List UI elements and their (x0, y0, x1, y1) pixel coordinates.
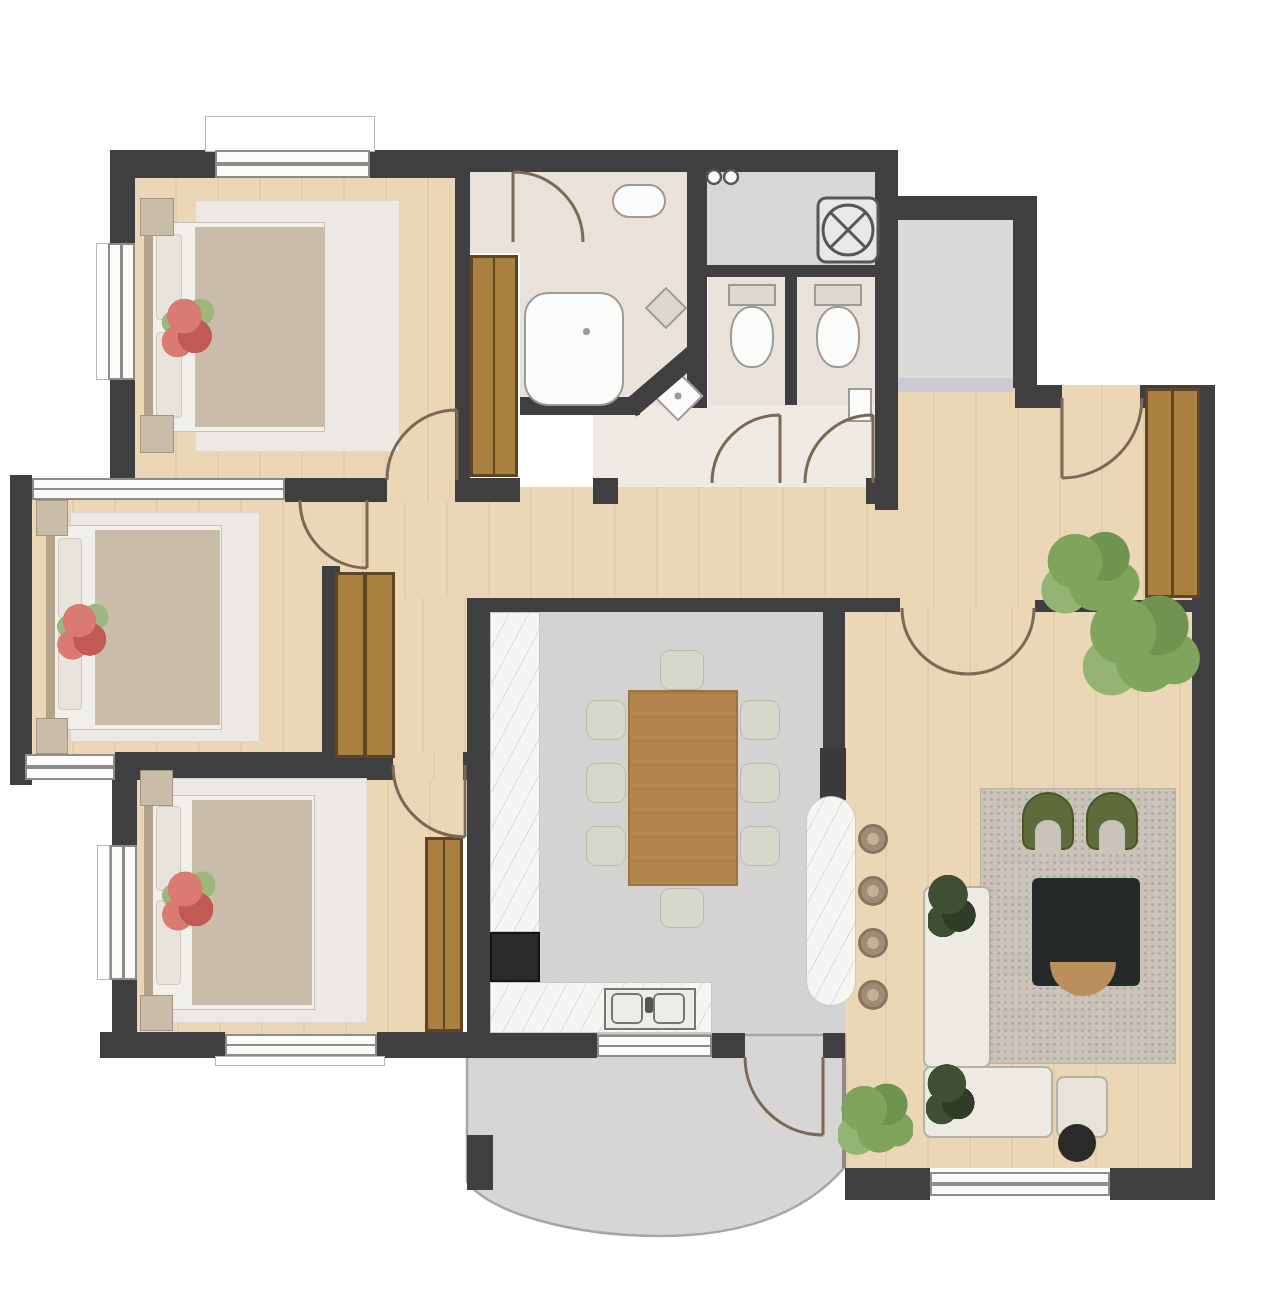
pivot-door-icon (707, 170, 738, 184)
door-shower-room (513, 172, 583, 242)
french-door-left (902, 608, 968, 674)
french-door-right (968, 608, 1034, 674)
door-bedroom3 (393, 765, 465, 837)
door-bedroom2 (300, 500, 367, 568)
floor-plan (0, 0, 1285, 1300)
symbols-layer (0, 0, 1285, 1300)
washing-machine-icon (818, 198, 878, 262)
door-wc1 (712, 415, 780, 483)
door-bedroom1 (387, 410, 457, 480)
door-wc2 (805, 415, 873, 483)
door-entry (1062, 398, 1142, 478)
wall-shower-diagonal (630, 348, 701, 409)
corner-basin-drain (675, 393, 682, 400)
door-balcony (745, 1057, 823, 1135)
